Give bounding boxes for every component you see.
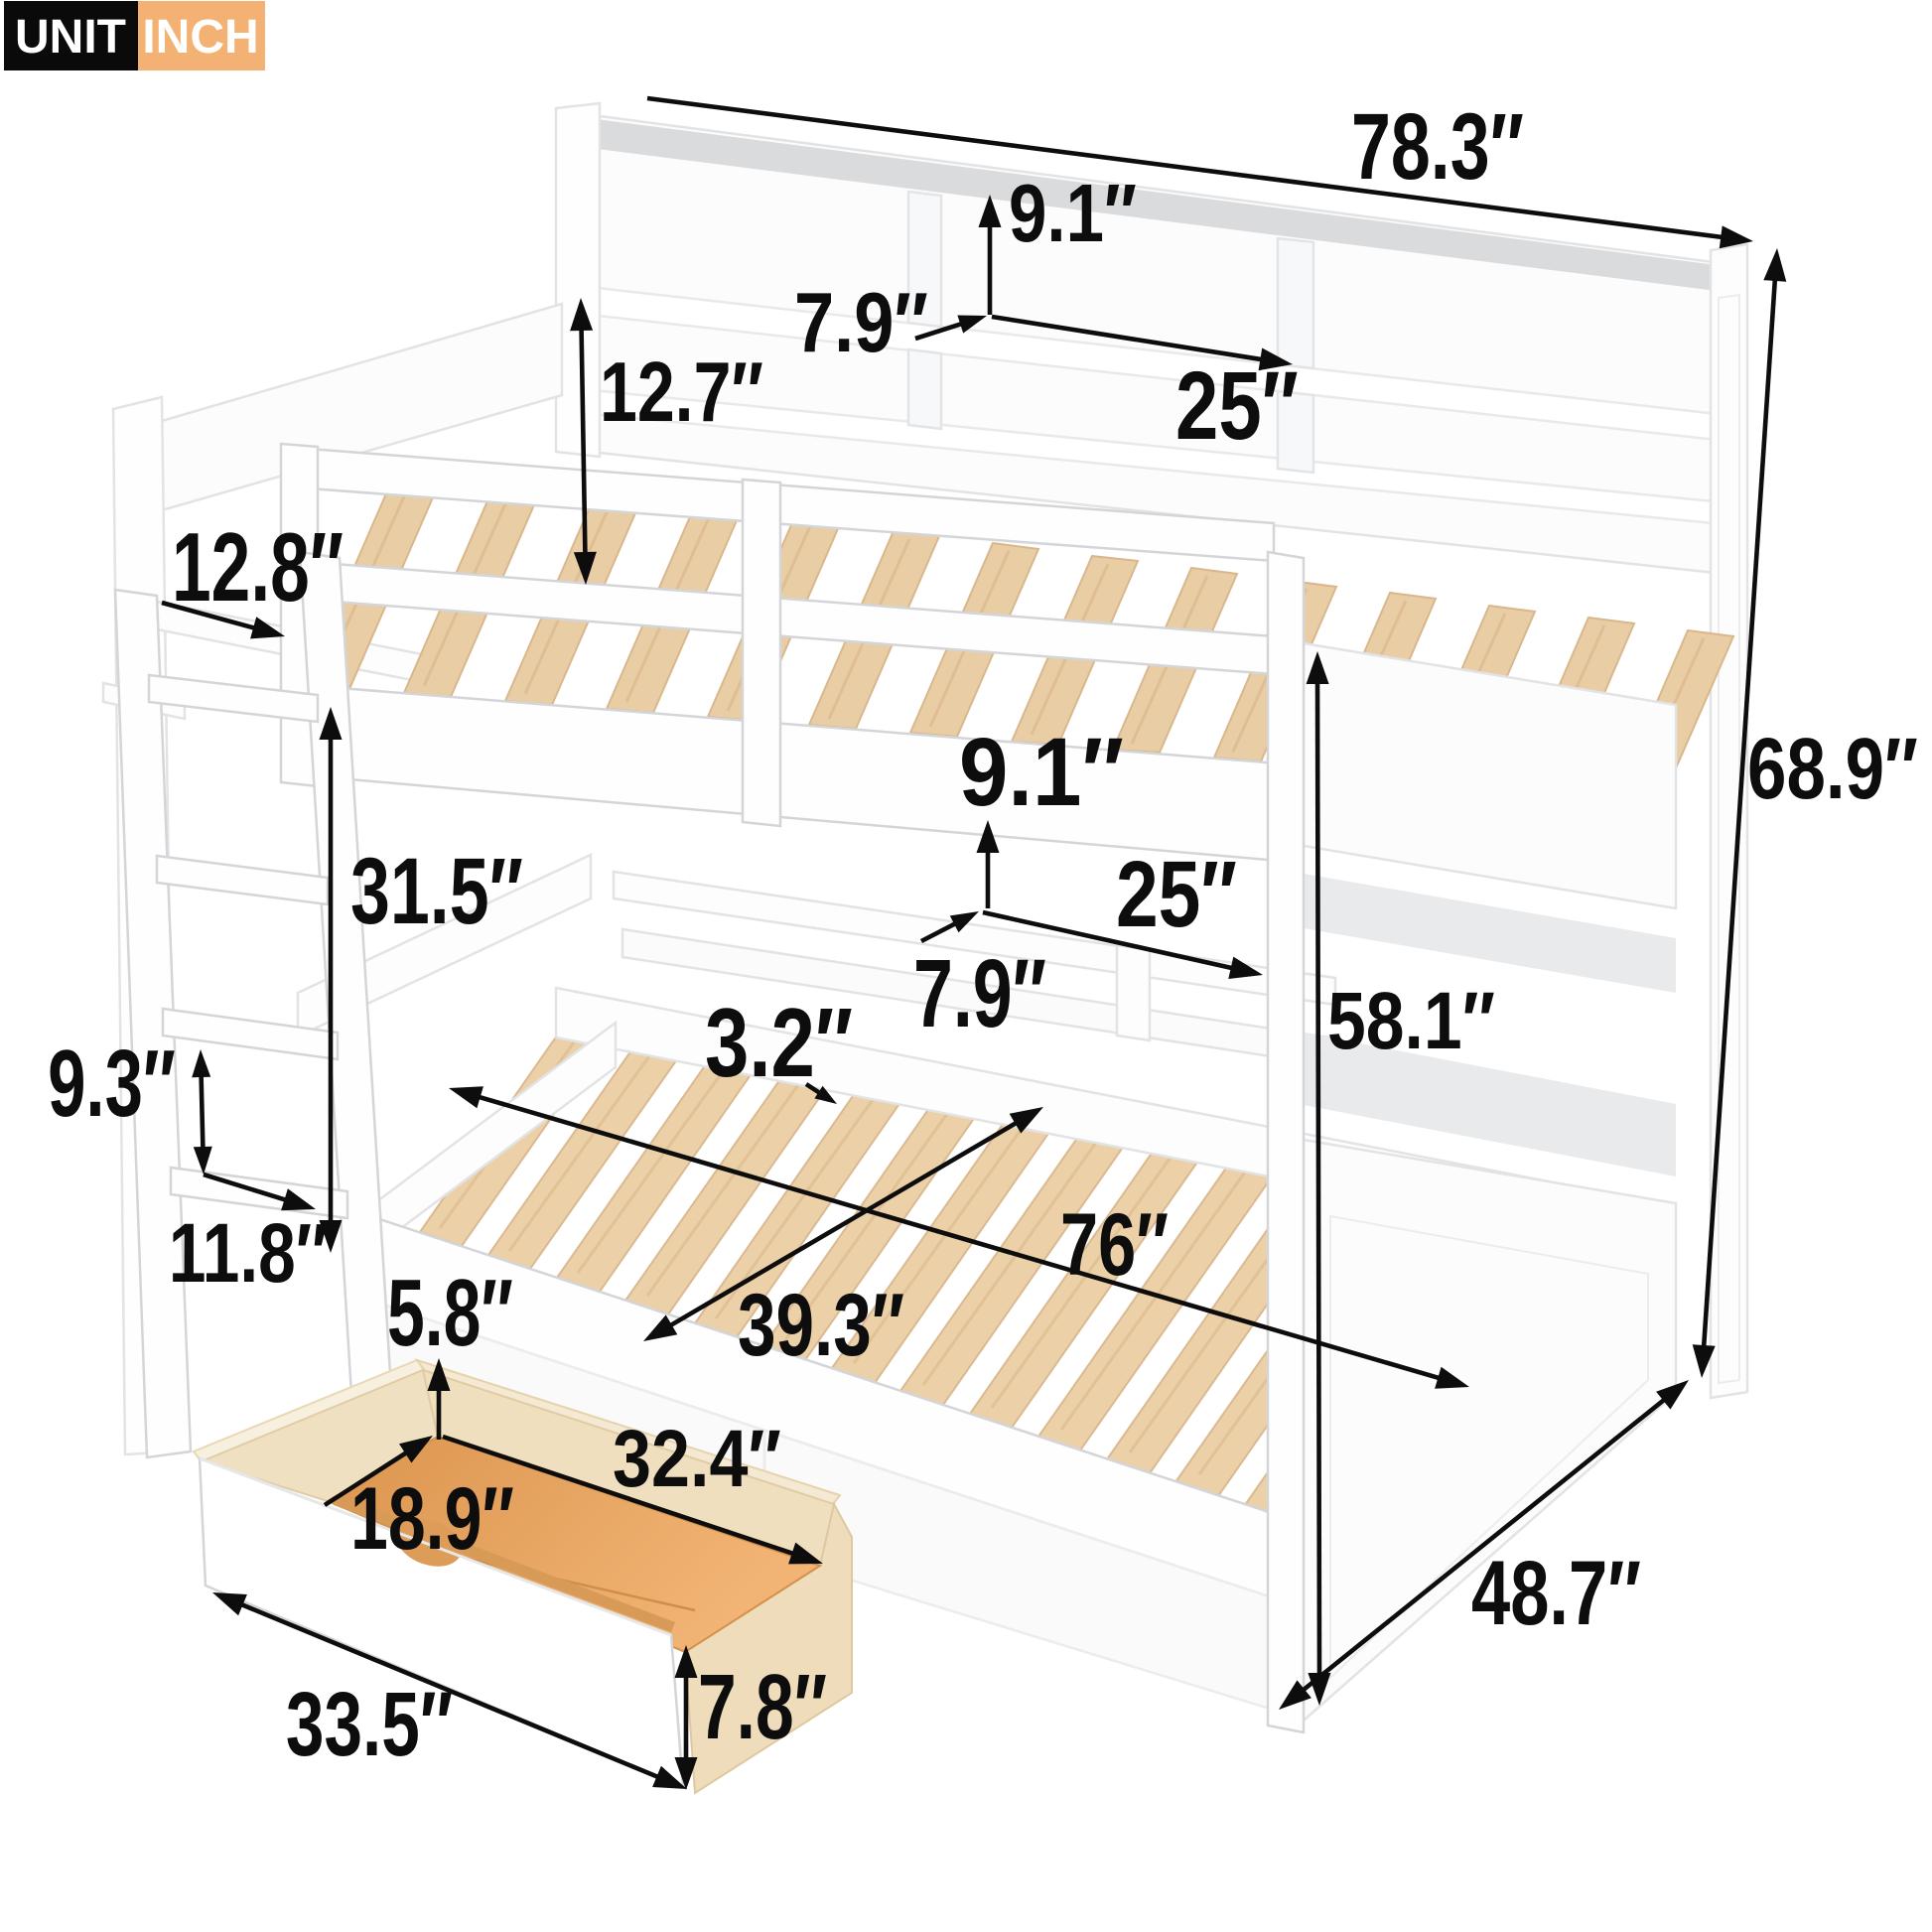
svg-text:68.9″: 68.9″ (1747, 720, 1918, 817)
svg-text:5.8″: 5.8″ (387, 1259, 513, 1365)
svg-text:12.8″: 12.8″ (172, 513, 344, 622)
svg-text:76″: 76″ (1060, 1194, 1169, 1294)
svg-text:INCH: INCH (142, 11, 258, 64)
svg-text:7.9″: 7.9″ (794, 274, 928, 369)
svg-text:78.3″: 78.3″ (1351, 93, 1524, 199)
svg-text:3.2″: 3.2″ (705, 989, 853, 1098)
svg-text:39.3″: 39.3″ (738, 1276, 904, 1374)
svg-text:12.7″: 12.7″ (600, 345, 763, 440)
svg-text:25″: 25″ (1175, 351, 1299, 460)
svg-text:33.5″: 33.5″ (286, 1674, 453, 1776)
svg-text:9.3″: 9.3″ (48, 1030, 176, 1137)
svg-text:25″: 25″ (1116, 842, 1237, 946)
svg-text:48.7″: 48.7″ (1471, 1543, 1641, 1644)
svg-text:18.9″: 18.9″ (350, 1468, 514, 1568)
svg-text:UNIT: UNIT (15, 11, 126, 64)
svg-text:11.8″: 11.8″ (169, 1207, 328, 1301)
svg-text:7.8″: 7.8″ (698, 1656, 827, 1758)
svg-text:58.1″: 58.1″ (1327, 976, 1495, 1066)
svg-text:9.1″: 9.1″ (1009, 168, 1137, 259)
svg-text:32.4″: 32.4″ (613, 1414, 781, 1504)
svg-text:7.9″: 7.9″ (913, 940, 1046, 1047)
svg-text:31.5″: 31.5″ (350, 838, 523, 943)
svg-text:9.1″: 9.1″ (959, 718, 1124, 826)
